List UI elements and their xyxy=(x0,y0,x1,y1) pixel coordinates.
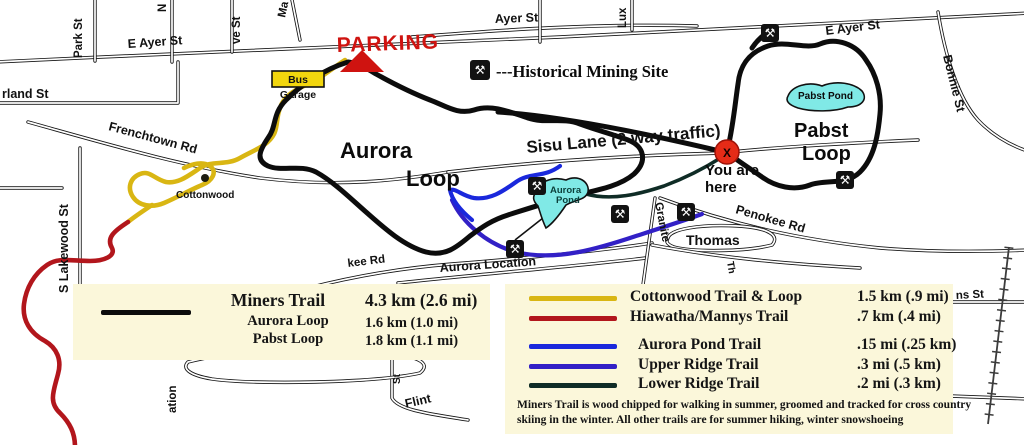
hiawatha-trail-swatch xyxy=(529,316,617,321)
street-label-rland-fragment: rland St xyxy=(2,87,49,101)
legend-trail-name: Aurora Pond Trail xyxy=(638,336,761,354)
parking-label: PARKING xyxy=(336,30,439,57)
mining-site-icon: ⚒ xyxy=(611,205,629,223)
street-label-s-lakewood-st: S Lakewood St xyxy=(57,203,71,293)
legend-note-line-1: Miners Trail is wood chipped for walking… xyxy=(517,398,947,413)
legend-trail-distance: .2 mi (.3 km) xyxy=(857,375,941,393)
cottonwood-trail-swatch xyxy=(529,296,617,301)
mining-site-icon: ⚒ xyxy=(528,177,546,195)
street-label-thomas: Thomas xyxy=(686,232,740,248)
bus-label: Bus xyxy=(288,74,308,86)
street-label-granite-fragment: Granite xyxy=(652,201,671,243)
aurora-loop-label-2: Loop xyxy=(406,166,460,191)
legend-trail-name: Lower Ridge Trail xyxy=(638,375,759,393)
mining-site-icon: ⚒ xyxy=(761,24,779,42)
road-flint-st xyxy=(392,356,468,420)
mining-pick-icon: ⚒ xyxy=(765,26,776,40)
legend-main-trails: Miners Trail 4.3 km (2.6 mi) Aurora Loop… xyxy=(73,284,490,360)
street-label-bonnie-st: Bonnie St xyxy=(940,53,968,114)
mining-pick-icon: ⚒ xyxy=(840,173,851,187)
cottonwood-trail-spur xyxy=(128,205,152,222)
legend-trail-distance: 1.6 km (1.0 mi) xyxy=(365,315,458,332)
mining-site-icon: ⚒ xyxy=(836,171,854,189)
aurora-pond-trail-swatch xyxy=(529,344,617,349)
trail-map: ⚒ ⚒ ⚒ ⚒ ⚒ ⚒ ⚒ X xyxy=(0,0,1024,445)
poi-label-cottonwood: Cottonwood xyxy=(176,190,234,201)
mining-pick-icon: ⚒ xyxy=(615,207,626,221)
street-label-ve-st-fragment: ve St xyxy=(231,16,243,44)
road-ma-st-core xyxy=(292,0,300,40)
legend-trail-distance: .3 mi (.5 km) xyxy=(857,356,941,374)
cottonwood-trailhead-dot xyxy=(201,174,209,182)
mining-pick-icon: ⚒ xyxy=(532,179,543,193)
street-label-e-ayer-east: E Ayer St xyxy=(825,17,882,38)
legend-trail-distance: 4.3 km (2.6 mi) xyxy=(365,290,477,311)
garage-label: Garage xyxy=(280,89,316,101)
legend-trail-distance: .15 mi (.25 km) xyxy=(857,336,956,354)
mining-site-icon: ⚒ xyxy=(677,203,695,221)
pabst-loop-label-2: Loop xyxy=(802,143,851,165)
upper-ridge-trail-swatch xyxy=(529,364,617,369)
street-label-n-fragment: N xyxy=(157,4,169,12)
lower-ridge-trail-swatch xyxy=(529,383,617,388)
mining-pick-icon: ⚒ xyxy=(475,63,486,77)
historical-mining-site-label: ---Historical Mining Site xyxy=(496,62,668,81)
street-label-ayer: Ayer St xyxy=(495,10,540,26)
you-are-here-label-2: here xyxy=(705,179,737,196)
legend-trail-name: Miners Trail xyxy=(193,290,363,311)
street-label-sisu-lane: Sisu Lane (2 way traffic) xyxy=(526,121,722,157)
street-label-flint-st-fragment: St xyxy=(392,373,403,384)
street-label-ns-st-fragment: ns St xyxy=(956,289,985,302)
street-label-frenchtown-rd: Frenchtown Rd xyxy=(107,119,198,156)
road-sisu-lane xyxy=(448,153,724,172)
you-are-here-marker: X xyxy=(715,140,739,164)
pabst-loop-label-1: Pabst xyxy=(794,120,849,142)
street-label-e-ayer-west: E Ayer St xyxy=(127,33,183,51)
street-label-ma-fragment: Ma xyxy=(276,0,291,19)
aurora-loop-label-1: Aurora xyxy=(340,138,413,163)
legend-trail-distance: .7 km (.4 mi) xyxy=(857,308,941,326)
street-label-flint: Flint xyxy=(404,391,434,411)
mining-pick-icon: ⚒ xyxy=(510,242,521,256)
miners-trail-swatch xyxy=(101,310,191,315)
pabst-pond-label: Pabst Pond xyxy=(798,91,853,102)
lower-ridge-trail xyxy=(586,157,722,197)
legend-trail-name: Cottonwood Trail & Loop xyxy=(630,288,802,306)
legend-other-trails: Cottonwood Trail & Loop 1.5 km (.9 mi) H… xyxy=(505,284,953,434)
x-marker-icon: X xyxy=(723,146,731,160)
legend-note-line-2: skiing in the winter. All other trails a… xyxy=(517,413,947,428)
road-flint-st-core xyxy=(392,356,468,420)
legend-trail-name: Pabst Loop xyxy=(213,331,363,348)
legend-trail-distance: 1.5 km (.9 mi) xyxy=(857,288,949,306)
street-label-th-fragment: Th xyxy=(724,261,737,275)
street-label-park-st: Park St xyxy=(73,18,85,58)
mining-pick-icon: ⚒ xyxy=(681,205,692,219)
legend-trail-name: Upper Ridge Trail xyxy=(638,356,759,374)
legend-trail-distance: 1.8 km (1.1 mi) xyxy=(365,333,458,350)
street-label-kee-rd-fragment: kee Rd xyxy=(347,253,386,270)
legend-trail-name: Aurora Loop xyxy=(213,313,363,330)
aurora-pond-label-2: Pond xyxy=(556,195,580,206)
street-label-ation-fragment: ation xyxy=(167,386,179,413)
legend-trail-name: Hiawatha/Mannys Trail xyxy=(630,308,788,326)
street-label-lux-fragment: Lux xyxy=(617,7,629,28)
mining-site-icon: ⚒ xyxy=(470,60,490,80)
you-are-here-label-1: You are xyxy=(705,162,759,179)
